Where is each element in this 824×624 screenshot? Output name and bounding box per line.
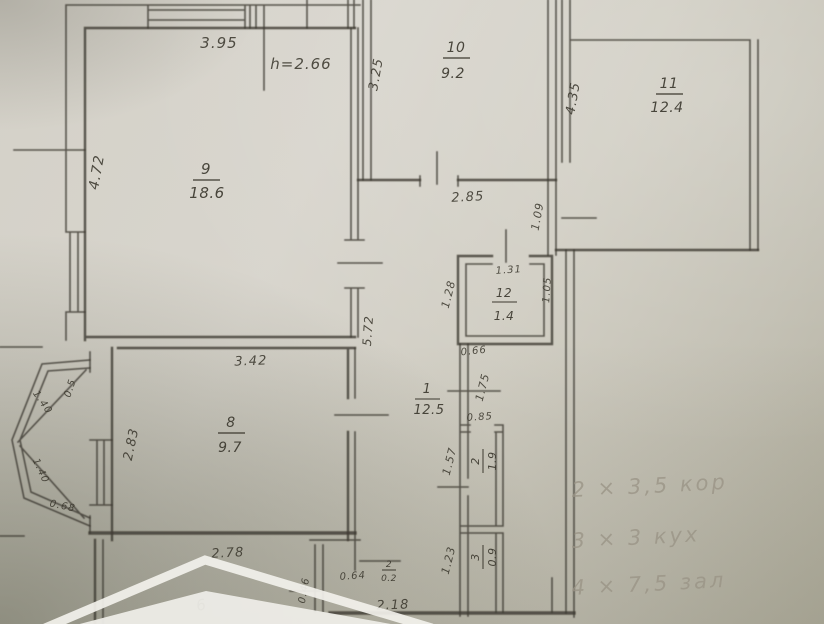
pencil-notes: 2 × 3,5 кор 3 × 3 кух 4 × 7,5 зал: [571, 470, 728, 600]
dim-bay-top: 0.5: [62, 378, 78, 399]
room-2-number: 2: [469, 457, 482, 465]
dim-room8-left: 2.83: [121, 427, 143, 462]
room-label-1: 1 12.5: [414, 382, 445, 418]
room-label-2: 2 1.9: [469, 449, 499, 473]
pencil-note-2: 3 × 3 кух: [571, 522, 701, 553]
pencil-note-1: 2 × 3,5 кор: [571, 470, 728, 502]
closet-number: 2: [386, 560, 392, 570]
pencil-note-3: 4 × 7,5 зал: [571, 568, 727, 600]
dim-bay-bottom: 0.68: [49, 498, 77, 514]
room-labels: 9 18.6 10 9.2 11 12.4 12 1.4 1 12.5 8 9.…: [189, 40, 683, 584]
dim-hall-left: 5.72: [360, 315, 376, 347]
dim-hall-right-small: 1.09: [529, 201, 547, 231]
room-label-3: 3 0.9: [469, 545, 499, 569]
dim-closet-width: 0.64: [339, 570, 366, 583]
dim-below-wc: 0.66: [460, 345, 487, 359]
room-9-area: 18.6: [189, 184, 224, 202]
room-11-number: 11: [660, 76, 679, 92]
room-label-8: 8 9.7: [218, 415, 245, 456]
scanned-floor-plan: 9 18.6 10 9.2 11 12.4 12 1.4 1 12.5 8 9.…: [0, 0, 824, 624]
closet-area: 0.2: [381, 574, 397, 584]
dim-bay-lower: 1.40: [30, 457, 51, 485]
room-10-number: 10: [447, 40, 466, 56]
room-12-area: 1.4: [494, 309, 515, 323]
room-1-number: 1: [423, 382, 432, 397]
dim-room8-top: 3.42: [234, 353, 267, 369]
room-11-area: 12.4: [650, 100, 683, 116]
room-label-11: 11 12.4: [650, 76, 683, 116]
room-9-number: 9: [201, 160, 211, 178]
dim-passage: 1.75: [473, 372, 493, 403]
dim-bath-left: 1.57: [440, 446, 460, 477]
room-label-closet: 2 0.2: [381, 560, 397, 584]
dim-left-height: 4.72: [86, 154, 108, 191]
room-12-number: 12: [496, 286, 512, 300]
dim-top-width: 3.95: [200, 34, 237, 52]
room-label-10: 10 9.2: [441, 40, 470, 82]
dim-hall-top: 2.85: [451, 189, 485, 206]
dim-door-small: 0.85: [466, 411, 493, 424]
dim-toilet-left: 1.23: [439, 545, 459, 576]
dim-room11-left: 4.35: [563, 81, 583, 116]
room-label-9: 9 18.6: [189, 160, 224, 202]
room-1-area: 12.5: [414, 403, 445, 418]
room-2-area: 1.9: [486, 452, 499, 471]
dim-kitchen-left: 3.25: [366, 57, 386, 92]
dim-wc-top: 1.31: [495, 264, 522, 277]
dim-bay-upper: 1.40: [30, 389, 54, 417]
room-3-number: 3: [469, 553, 482, 561]
dim-wc-left: 1.28: [439, 279, 459, 310]
room-8-area: 9.7: [218, 440, 242, 456]
room-3-area: 0.9: [486, 548, 499, 567]
floor-plan-drawing: 9 18.6 10 9.2 11 12.4 12 1.4 1 12.5 8 9.…: [0, 0, 824, 624]
room-label-12: 12 1.4: [492, 286, 517, 323]
dim-wc-right: 1.05: [541, 276, 554, 303]
ceiling-height-note: h=2.66: [270, 55, 331, 73]
room-8-number: 8: [226, 415, 235, 431]
room-10-area: 9.2: [441, 66, 465, 82]
